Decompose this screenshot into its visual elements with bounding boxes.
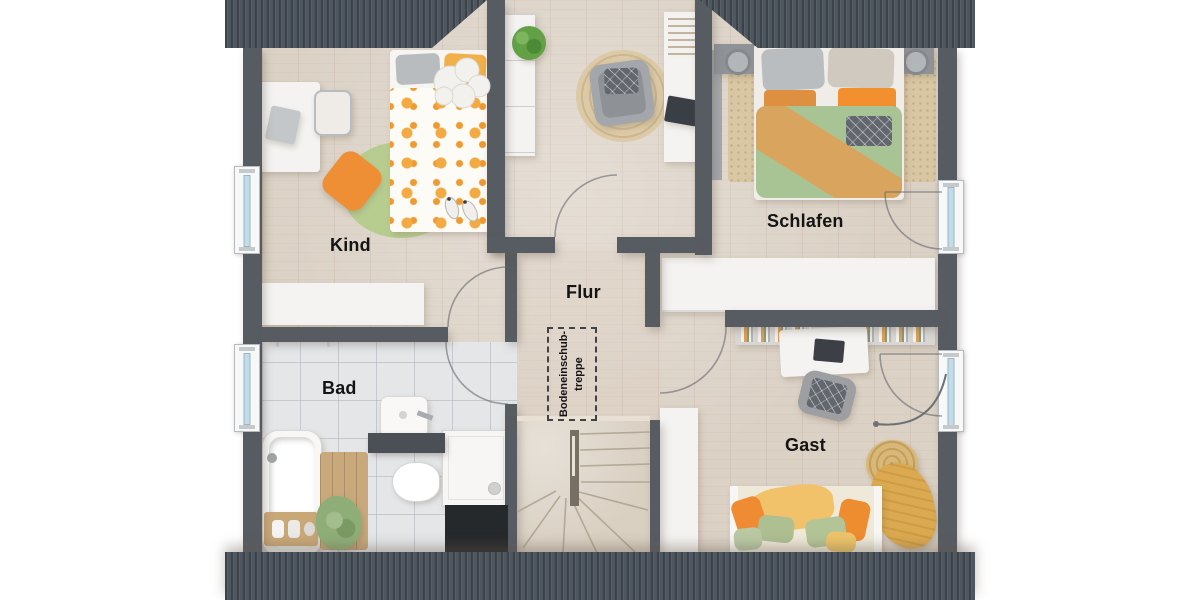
window-glass — [244, 353, 251, 426]
kind-pillow-grey — [395, 53, 441, 85]
window-cap — [943, 247, 960, 251]
caddy-soap — [304, 522, 315, 536]
window-kind — [234, 166, 260, 254]
wall-study-bottom-left — [487, 237, 555, 253]
window-cap — [239, 247, 256, 251]
study-armchair-pillow — [604, 67, 639, 94]
window-cap — [943, 183, 960, 187]
wall-hall-column-upper — [505, 253, 517, 342]
guest-laptop — [813, 338, 845, 363]
bed-pillow-tan — [827, 47, 894, 89]
room-label-schlafen: Schlafen — [767, 211, 844, 232]
lamp-left — [725, 49, 751, 75]
shower-drain — [488, 482, 501, 495]
room-label-bad: Bad — [322, 378, 357, 399]
study-armchair — [588, 58, 656, 128]
bed-pillow-grey — [761, 46, 825, 91]
wall-hall-column-lower — [505, 404, 517, 420]
bed-plaid-blanket — [846, 116, 892, 146]
sink-drain — [399, 411, 407, 419]
shower — [442, 430, 510, 506]
kind-duvet — [390, 88, 490, 232]
bathtub-faucet — [267, 453, 277, 463]
window-glass — [948, 187, 955, 248]
wall-kind-bath — [262, 327, 448, 342]
window-cap — [239, 169, 256, 173]
lamp-right — [903, 49, 929, 75]
study-books — [668, 18, 696, 58]
sofa-pillow-green-left — [757, 514, 796, 544]
room-label-flur: Flur — [566, 282, 601, 303]
guest-desk — [779, 326, 869, 378]
plant — [512, 26, 546, 60]
hall-cabinet — [660, 408, 698, 552]
window-bath — [234, 344, 260, 432]
nightstand-left — [714, 44, 756, 74]
window-cap — [239, 425, 256, 429]
guest-chair-cushion — [806, 377, 848, 415]
wall-bedroom-corner — [645, 253, 660, 327]
room-label-gast: Gast — [785, 435, 826, 456]
wall-exterior-left — [243, 47, 262, 553]
roof-band-bottom — [225, 552, 975, 600]
window-guest — [938, 350, 964, 432]
wall-dormer-left — [487, 0, 505, 253]
sofa-pillow-yellow-right — [825, 531, 856, 553]
wall-bedroom-guest — [725, 310, 938, 327]
window-glass — [244, 175, 251, 248]
room-label-kind: Kind — [330, 235, 371, 256]
kind-sideboard — [262, 283, 424, 325]
sink — [380, 396, 428, 438]
towel-pile — [316, 496, 362, 550]
window-cap — [943, 353, 960, 357]
wall-exterior-right — [938, 47, 957, 553]
window-cap — [239, 347, 256, 351]
bedroom-wardrobe — [662, 258, 935, 312]
attic-stairs-line1: Bodeneinschub- — [558, 331, 570, 417]
bath-dark-niche — [445, 505, 508, 553]
window-cap — [943, 425, 960, 429]
window-bedroom — [938, 180, 964, 254]
wall-stairs-right — [650, 420, 660, 553]
bathtub-caddy — [264, 512, 318, 546]
sofa-pillow-sage — [733, 527, 763, 552]
attic-stairs-marker: Bodeneinschub- treppe — [547, 327, 597, 421]
attic-stairs-label: Bodeneinschub- treppe — [557, 331, 587, 417]
guest-sofa — [730, 486, 882, 553]
kind-desk-chair — [314, 90, 352, 136]
toilet — [390, 460, 440, 502]
kind-pillow-orange — [443, 53, 487, 85]
attic-stairs-line2: treppe — [573, 357, 585, 391]
kind-bed — [390, 50, 490, 232]
toilet-bowl — [392, 462, 440, 502]
floor-plan: Kind Schlafen Flur Bad Gast Bodeneinschu… — [0, 0, 1200, 600]
wall-dormer-right — [695, 0, 712, 255]
caddy-towel-1 — [272, 520, 284, 538]
window-glass — [948, 358, 955, 426]
sofa-arm-right — [874, 486, 882, 553]
caddy-towel-2 — [288, 520, 300, 538]
double-bed — [754, 44, 904, 200]
staircase-floor — [517, 420, 650, 553]
wall-study-bottom-right — [617, 237, 695, 253]
wall-toilet-partition — [368, 433, 445, 453]
